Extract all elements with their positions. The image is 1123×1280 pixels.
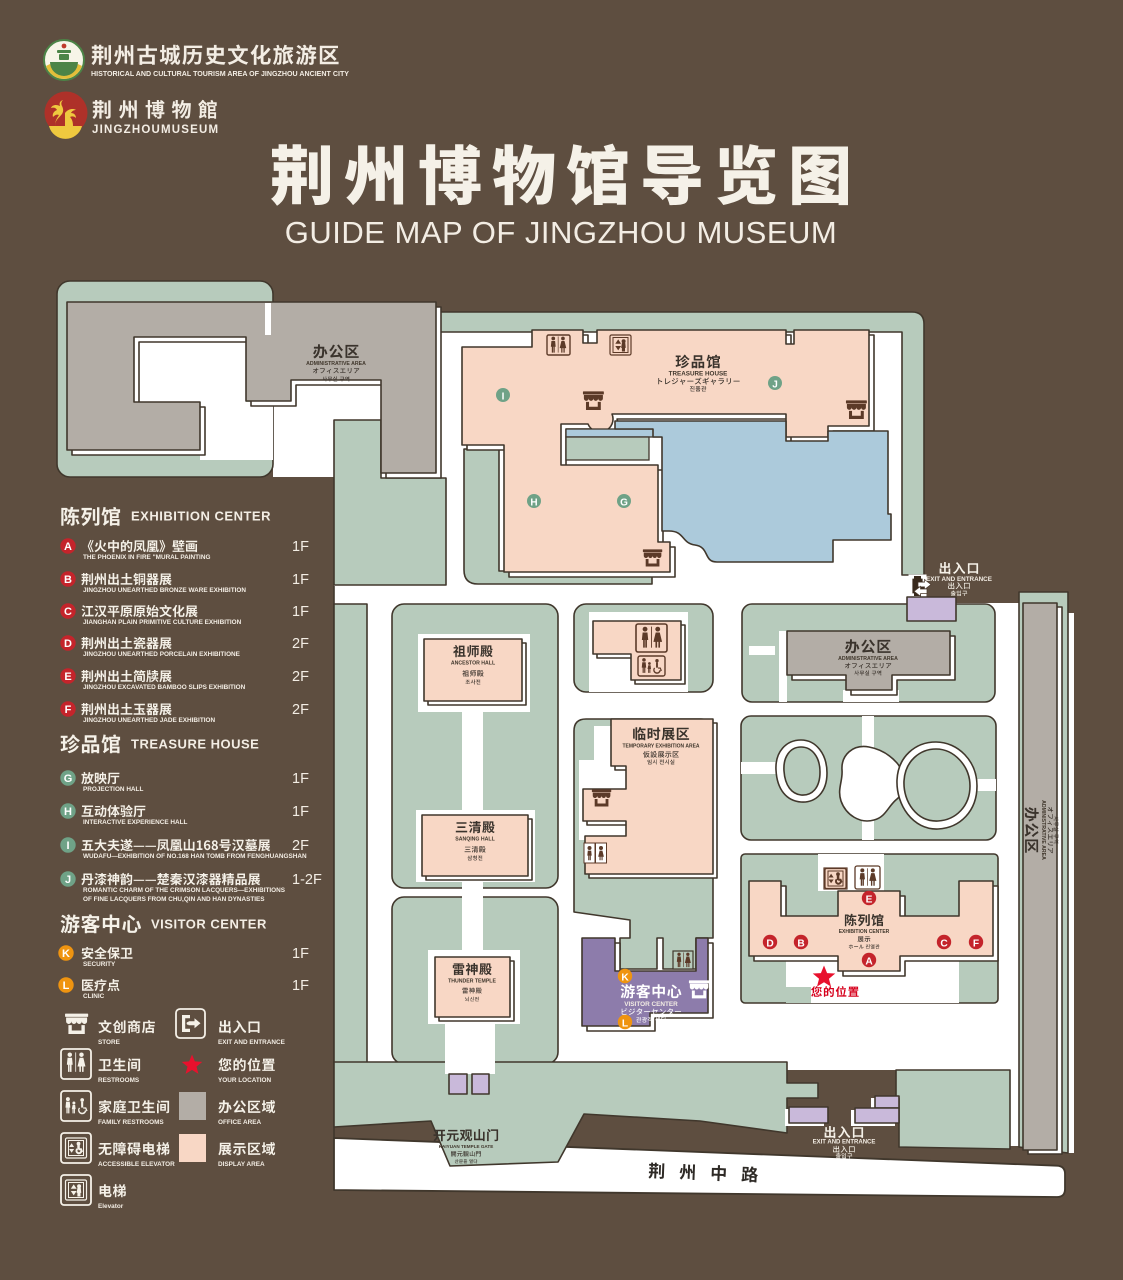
svg-text:ANCESTOR HALL: ANCESTOR HALL [451,661,496,667]
svg-text:SECURITY: SECURITY [83,961,116,968]
svg-text:D: D [766,939,773,950]
svg-text:C: C [940,939,948,950]
svg-text:2F: 2F [292,702,309,718]
svg-text:2F: 2F [292,636,309,652]
svg-text:B: B [64,574,72,586]
svg-text:J: J [772,380,778,391]
svg-text:A: A [64,541,72,553]
svg-text:C: C [64,606,72,618]
svg-text:STORE: STORE [98,1039,121,1046]
svg-text:2F: 2F [292,669,309,685]
svg-text:JINGZHOU EXCAVATED BAMBOO SLIP: JINGZHOU EXCAVATED BAMBOO SLIPS EXHIBITI… [83,684,246,691]
svg-text:TEMPORARY EXHIBITION AREA: TEMPORARY EXHIBITION AREA [622,744,699,750]
svg-text:E: E [866,895,873,906]
svg-text:ADMINISTRATIVE AREA: ADMINISTRATIVE AREA [306,361,366,367]
svg-text:EXIT AND ENTRANCE: EXIT AND ENTRANCE [813,1140,876,1146]
svg-text:B: B [797,939,804,950]
svg-text:JINGZHOU UNEARTHED JADE EXHIBI: JINGZHOU UNEARTHED JADE EXHIBITION [83,717,215,724]
svg-text:D: D [64,638,72,650]
svg-text:TREASURE HOUSE: TREASURE HOUSE [669,371,728,378]
svg-text:HISTORICAL AND CULTURAL TOURIS: HISTORICAL AND CULTURAL TOURISM AREA OF … [91,70,349,78]
svg-text:J: J [65,874,71,886]
svg-text:EXIT AND ENTRANCE: EXIT AND ENTRANCE [218,1039,286,1046]
svg-text:K: K [621,973,629,984]
svg-text:I: I [66,840,69,852]
svg-text:JIANGHAN PLAIN PRIMITIVE CULTU: JIANGHAN PLAIN PRIMITIVE CULTURE EXHIBIT… [83,619,242,626]
svg-text:SANQING HALL: SANQING HALL [455,837,495,843]
svg-text:1F: 1F [292,804,309,820]
svg-text:THUNDER TEMPLE: THUNDER TEMPLE [448,979,496,985]
svg-text:RESTROOMS: RESTROOMS [98,1077,140,1084]
svg-text:G: G [620,498,628,509]
svg-text:EXHIBITION CENTER: EXHIBITION CENTER [131,509,271,524]
svg-text:1-2F: 1-2F [292,872,322,888]
svg-text:DISPLAY AREA: DISPLAY AREA [218,1161,265,1168]
svg-text:A: A [865,957,873,968]
svg-text:2F: 2F [292,838,309,854]
svg-text:ROMANTIC CHARM OF THE CRIMSON: ROMANTIC CHARM OF THE CRIMSON LACQUERS—E… [83,887,286,894]
svg-text:ACCESSIBLE ELEVATOR: ACCESSIBLE ELEVATOR [98,1161,175,1168]
svg-text:THE PHOENIX IN FIRE "MURAL PAI: THE PHOENIX IN FIRE "MURAL PAINTING [83,554,210,561]
svg-text:VISITOR CENTER: VISITOR CENTER [151,917,267,932]
svg-text:JINGZHOUMUSEUM: JINGZHOUMUSEUM [92,124,219,136]
svg-text:1F: 1F [292,572,309,588]
svg-text:EXIT AND ENTRANCE: EXIT AND ENTRANCE [926,576,992,583]
svg-text:L: L [622,1019,628,1030]
svg-text:ADMINISTRATIVE AREA: ADMINISTRATIVE AREA [838,656,898,662]
svg-text:1F: 1F [292,978,309,994]
svg-text:Elevator: Elevator [98,1203,124,1210]
svg-text:I: I [502,392,505,403]
svg-text:INTERACTIVE EXPERIENCE HALL: INTERACTIVE EXPERIENCE HALL [83,819,187,826]
svg-text:EXHIBITION CENTER: EXHIBITION CENTER [839,929,890,935]
svg-text:E: E [64,671,71,683]
svg-text:CLINIC: CLINIC [83,993,105,1000]
svg-text:F: F [973,939,979,950]
svg-text:PROJECTION HALL: PROJECTION HALL [83,786,143,793]
svg-text:1F: 1F [292,946,309,962]
svg-text:ADMINISTRATIVE AREA: ADMINISTRATIVE AREA [1040,800,1046,860]
svg-text:1F: 1F [292,539,309,555]
svg-text:OF FINE LACQUERS FROM CHU,QIN: OF FINE LACQUERS FROM CHU,QIN AND HAN DY… [83,896,265,903]
svg-text:VISITOR CENTER: VISITOR CENTER [624,1001,678,1008]
svg-text:TREASURE HOUSE: TREASURE HOUSE [131,737,259,752]
svg-text:1F: 1F [292,604,309,620]
svg-text:GUIDE MAP OF JINGZHOU MUSEUM: GUIDE MAP OF JINGZHOU MUSEUM [285,215,838,250]
svg-text:JINGZHOU UNEARTHED PORCELAIN E: JINGZHOU UNEARTHED PORCELAIN EXHIBITIONE [83,651,241,658]
svg-text:WUDAFU—EXHIBITION OF NO.168 HA: WUDAFU—EXHIBITION OF NO.168 HAN TOMB FRO… [83,853,307,860]
svg-text:L: L [63,980,70,992]
svg-text:FAMILY RESTROOMS: FAMILY RESTROOMS [98,1119,164,1126]
svg-text:KAIYUAN TEMPLE GATE: KAIYUAN TEMPLE GATE [439,1144,494,1149]
svg-text:F: F [65,704,72,716]
svg-text:K: K [62,948,70,960]
svg-text:H: H [530,498,537,509]
svg-text:YOUR LOCATION: YOUR LOCATION [218,1077,272,1084]
svg-text:JINGZHOU UNEARTHED BRONZE WARE: JINGZHOU UNEARTHED BRONZE WARE EXHIBITIO… [83,587,246,594]
svg-text:G: G [64,773,73,785]
svg-text:1F: 1F [292,771,309,787]
svg-text:OFFICE AREA: OFFICE AREA [218,1119,261,1126]
svg-text:H: H [64,806,72,818]
